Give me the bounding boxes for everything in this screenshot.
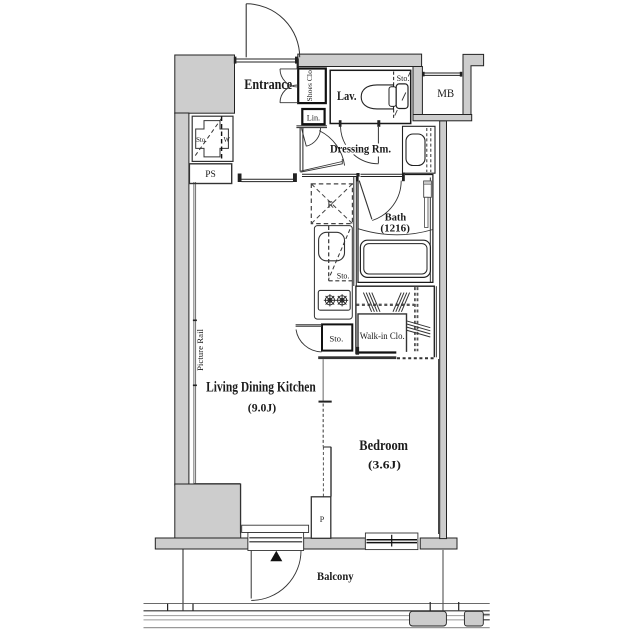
svg-text:Balcony: Balcony [317, 571, 354, 583]
svg-text:R: R [327, 201, 334, 211]
svg-text:Shoes Clo: Shoes Clo [305, 70, 314, 102]
svg-text:Walk-in Clo.: Walk-in Clo. [360, 332, 405, 342]
svg-text:Lin.: Lin. [307, 113, 320, 122]
svg-text:Sto.: Sto. [337, 271, 350, 280]
svg-text:PS: PS [205, 170, 216, 180]
svg-text:(1216): (1216) [380, 224, 410, 235]
svg-text:Lav.: Lav. [337, 89, 357, 103]
svg-text:Sto.: Sto. [196, 137, 207, 144]
svg-text:MB: MB [437, 88, 454, 100]
svg-text:Picture Rail: Picture Rail [195, 328, 205, 371]
svg-text:P: P [320, 515, 325, 524]
svg-text:Bedroom: Bedroom [359, 438, 408, 454]
svg-text:W: W [223, 137, 230, 144]
svg-text:Bath: Bath [385, 212, 406, 223]
svg-text:Sto.: Sto. [397, 74, 410, 83]
svg-text:Dressing Rm.: Dressing Rm. [330, 144, 391, 156]
svg-text:Sto.: Sto. [329, 333, 343, 343]
svg-text:(9.0J): (9.0J) [248, 400, 276, 414]
svg-text:(3.6J): (3.6J) [368, 458, 401, 472]
svg-text:Living Dining Kitchen: Living Dining Kitchen [206, 379, 316, 395]
